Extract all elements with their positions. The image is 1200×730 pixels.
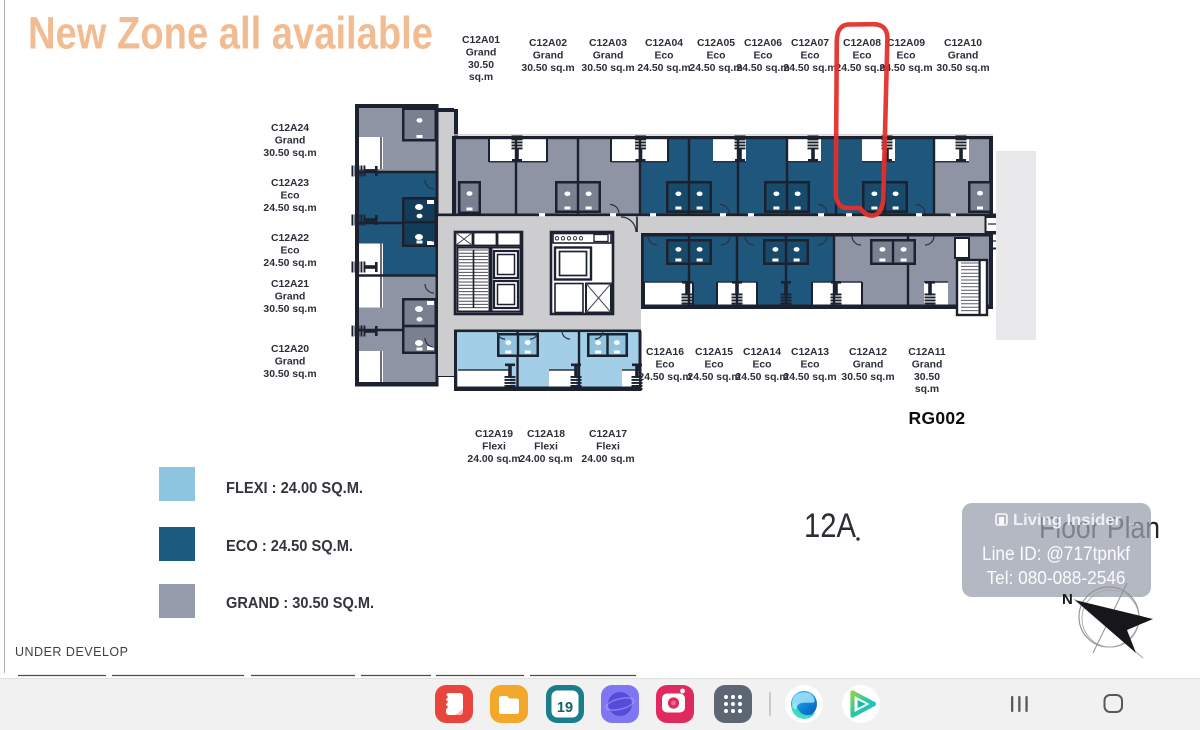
svg-text:30.50 sq.m: 30.50 sq.m (521, 63, 574, 74)
svg-text:C12A05: C12A05 (697, 38, 735, 49)
svg-text:Grand: Grand (275, 291, 306, 302)
svg-text:Grand: Grand (466, 47, 497, 58)
svg-text:Eco: Eco (704, 359, 723, 370)
svg-text:Grand: Grand (912, 359, 943, 370)
svg-text:Grand: Grand (948, 50, 979, 61)
svg-text:24.50 sq.m: 24.50 sq.m (263, 203, 316, 214)
svg-text:C12A07: C12A07 (791, 38, 829, 49)
svg-text:GRAND : 30.50 SQ.M.: GRAND : 30.50 SQ.M. (226, 595, 374, 612)
svg-text:C12A17: C12A17 (589, 429, 627, 440)
svg-text:30.50 sq.m: 30.50 sq.m (936, 63, 989, 74)
svg-text:C12A16: C12A16 (646, 347, 684, 358)
svg-text:UNDER DEVELOP: UNDER DEVELOP (15, 645, 128, 659)
svg-text:Eco: Eco (852, 50, 871, 61)
svg-text:24.00 sq.m: 24.00 sq.m (581, 454, 634, 465)
svg-text:Flexi: Flexi (596, 441, 620, 452)
svg-text:New Zone all available: New Zone all available (28, 8, 433, 59)
svg-text:24.50 sq.m: 24.50 sq.m (783, 63, 836, 74)
svg-text:C12A01: C12A01 (462, 35, 500, 46)
svg-text:Eco: Eco (706, 50, 725, 61)
svg-text:24.00 sq.m: 24.00 sq.m (467, 454, 520, 465)
svg-text:24.50 sq.m: 24.50 sq.m (638, 372, 691, 383)
svg-text:Eco: Eco (753, 50, 772, 61)
svg-text:Tel: 080-088-2546: Tel: 080-088-2546 (987, 567, 1126, 588)
svg-text:C12A11: C12A11 (908, 347, 946, 358)
svg-text:Grand: Grand (533, 50, 564, 61)
svg-text:C12A08: C12A08 (843, 38, 881, 49)
svg-text:C12A02: C12A02 (529, 38, 567, 49)
svg-text:C12A21: C12A21 (271, 279, 309, 290)
svg-text:FLEXI : 24.00 SQ.M.: FLEXI : 24.00 SQ.M. (226, 480, 363, 497)
svg-text:Eco: Eco (896, 50, 915, 61)
svg-text:C12A13: C12A13 (791, 347, 829, 358)
svg-text:30.50 sq.m: 30.50 sq.m (841, 372, 894, 383)
svg-text:C12A15: C12A15 (695, 347, 733, 358)
svg-text:30.50 sq.m: 30.50 sq.m (581, 63, 634, 74)
svg-text:ECO : 24.50 SQ.M.: ECO : 24.50 SQ.M. (226, 538, 353, 555)
svg-text:C12A12: C12A12 (849, 347, 887, 358)
svg-text:Grand: Grand (853, 359, 884, 370)
svg-text:C12A03: C12A03 (589, 38, 627, 49)
svg-text:24.50 sq.m: 24.50 sq.m (736, 63, 789, 74)
svg-text:24.50 sq.m: 24.50 sq.m (263, 258, 316, 269)
svg-text:Eco: Eco (752, 359, 771, 370)
svg-text:C12A09: C12A09 (887, 38, 925, 49)
svg-text:N: N (1062, 591, 1073, 608)
svg-text:Eco: Eco (655, 359, 674, 370)
svg-text:...: ... (1128, 513, 1139, 528)
svg-text:24.50 sq.m: 24.50 sq.m (735, 372, 788, 383)
svg-text:Flexi: Flexi (482, 441, 506, 452)
svg-text:RG002: RG002 (909, 408, 966, 428)
svg-text:C12A04: C12A04 (645, 38, 683, 49)
svg-text:Flexi: Flexi (534, 441, 558, 452)
svg-text:sq.m: sq.m (915, 384, 939, 395)
svg-text:30.50: 30.50 (914, 372, 940, 383)
svg-text:24.50 sq.m: 24.50 sq.m (637, 63, 690, 74)
svg-text:C12A10: C12A10 (944, 38, 982, 49)
svg-text:C12A14: C12A14 (743, 347, 781, 358)
svg-text:24.50 sq.m: 24.50 sq.m (783, 372, 836, 383)
svg-text:Eco: Eco (280, 190, 299, 201)
svg-text:C12A23: C12A23 (271, 178, 309, 189)
svg-text:24.50 sq.m: 24.50 sq.m (689, 63, 742, 74)
svg-text:Living Insider: Living Insider (1013, 512, 1121, 529)
svg-text:30.50: 30.50 (468, 60, 494, 71)
svg-text:Eco: Eco (800, 359, 819, 370)
svg-text:C12A20: C12A20 (271, 344, 309, 355)
svg-text:C12A18: C12A18 (527, 429, 565, 440)
svg-text:30.50 sq.m: 30.50 sq.m (263, 148, 316, 159)
svg-text:Line ID: @717tpnkf: Line ID: @717tpnkf (982, 544, 1131, 565)
svg-text:19: 19 (557, 700, 573, 716)
svg-text:24.50 sq.m: 24.50 sq.m (687, 372, 740, 383)
svg-text:24.00 sq.m: 24.00 sq.m (519, 454, 572, 465)
svg-text:12A: 12A (804, 507, 856, 545)
svg-text:Grand: Grand (275, 356, 306, 367)
svg-text:sq.m: sq.m (469, 72, 493, 83)
svg-text:C12A24: C12A24 (271, 123, 309, 134)
svg-text:Eco: Eco (280, 245, 299, 256)
svg-text:Eco: Eco (800, 50, 819, 61)
svg-text:Grand: Grand (275, 135, 306, 146)
svg-text:C12A19: C12A19 (475, 429, 513, 440)
svg-text:Grand: Grand (593, 50, 624, 61)
svg-text:C12A06: C12A06 (744, 38, 782, 49)
svg-text:Eco: Eco (654, 50, 673, 61)
svg-text:30.50 sq.m: 30.50 sq.m (263, 304, 316, 315)
svg-text:30.50 sq.m: 30.50 sq.m (263, 369, 316, 380)
svg-text:C12A22: C12A22 (271, 233, 309, 244)
